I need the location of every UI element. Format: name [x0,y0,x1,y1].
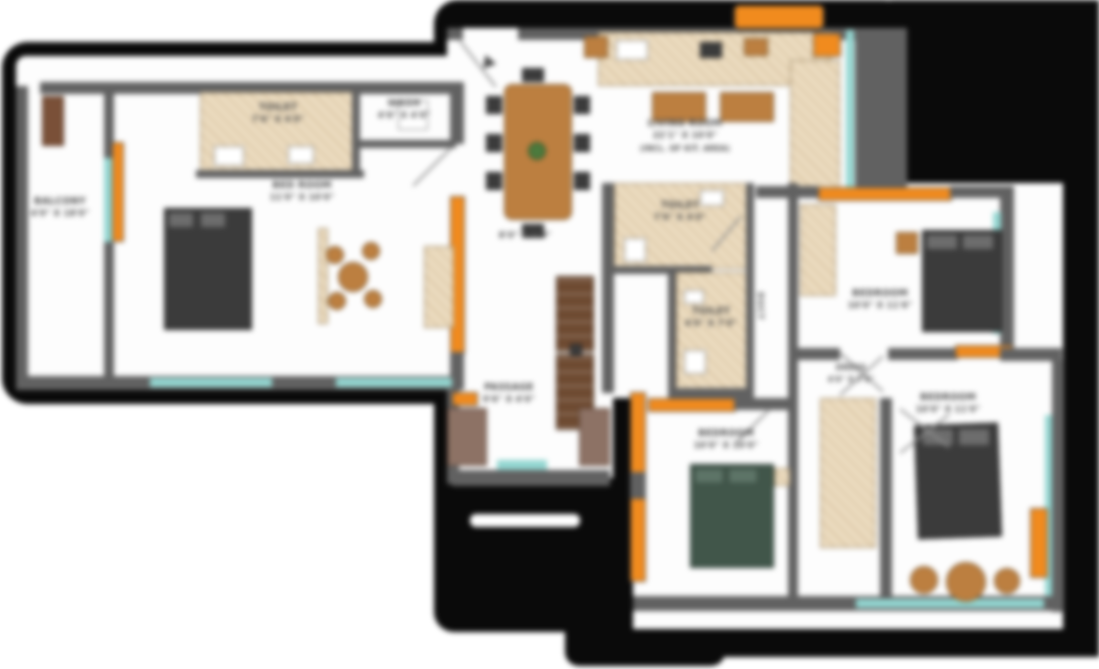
wall [668,388,754,398]
stool [994,568,1020,594]
wall [950,186,1006,198]
room-label-toilet3: TOILET 4'0" X 7'0" [676,306,746,331]
window-sill [630,498,646,582]
hob [700,42,722,58]
balcony-projection [733,4,825,30]
room-name: DUCT [756,292,765,320]
chair [574,96,590,114]
wardrobe-knob [570,344,582,356]
wall [668,272,676,396]
chair [362,242,380,260]
room-dim: 7'0" X 4'0" [654,213,706,223]
wall [880,398,892,598]
window-strip [856,599,1044,608]
window-strip [336,378,452,387]
room-label-bedroom4: BEDROOM 10'0" X 11'0" [888,392,1008,417]
wall [196,170,364,178]
counter-item [813,33,841,57]
window-sill [112,142,124,242]
chair [574,172,590,190]
washbasin [684,290,704,304]
wall [104,242,114,382]
room-dim: 4'0" X 7'0" [685,319,737,329]
room-label-dress: DRESS 4'0" X 7'6" [824,362,878,387]
wall [450,92,464,144]
floor-plan: BALCONY 4'0" X 18'0" TOILET 7'6" X 4'0" … [0,0,1099,669]
pillow [958,428,990,446]
room-name: WASH [388,98,421,109]
room-dim: 4'6" X 4'0" [378,111,430,121]
room-name: TOILET [259,102,297,113]
room-name: BED ROOM [272,180,331,191]
stool [946,562,986,602]
wall [1000,186,1014,354]
wall [798,348,840,360]
window-sill [818,187,952,201]
room-label-duct: DUCT [756,292,765,320]
counter-item [744,38,768,56]
room-label-living: LIVING ROOM 22'1" X 10'0" (INCL. OF KIT.… [600,118,770,155]
room-dim: 11'0" X 10'0" [270,193,335,203]
wall [746,272,754,396]
window-sill [630,392,646,474]
table-plant [528,142,546,160]
kitchen-platform [790,60,840,195]
room-name: BEDROOM [920,392,976,403]
chair [522,68,544,82]
room-label-toilet2: TOILET 7'0" X 4'0" [628,200,732,225]
round-table [338,262,368,292]
room-label-bedroom2: BEDROOM 10'0" X 11'6" [822,288,938,313]
window-sill [452,392,478,406]
room-label-passage: PASSAGE 9'6" X 4'0" [466,382,552,407]
chair [574,134,590,152]
chair [486,134,502,152]
lobby-pillar [579,408,610,466]
washbasin [214,146,244,166]
room-dim: 7'6" X 4'0" [252,115,304,125]
room-dim: 10'0" X 10'0" [694,441,759,451]
wall [602,183,614,393]
room-dim: 4'0" X 18'0" [31,209,90,219]
room-name: BEDROOM [698,428,754,439]
wall [855,28,907,196]
wall [756,186,818,198]
chair [486,96,502,114]
room-name: TOILET [692,306,730,317]
toilet-wc [288,146,314,164]
chair [326,246,344,264]
window-strip [497,460,547,470]
room-dim: 10'0" X 11'6" [848,301,913,311]
room-label-foyer: 8'0" X 4'0" [480,230,570,242]
duct-box [42,96,64,146]
toilet-wc [684,350,706,374]
entry-step [470,514,580,527]
plan-outline-top-right [890,0,1099,190]
wall [746,183,754,275]
chair [328,292,346,310]
wall [16,86,28,388]
pillow [168,212,194,228]
room-dim: 8'0" X 4'0" [499,231,551,241]
room-dim: 9'6" X 4'0" [483,395,535,405]
chair [364,290,382,308]
room-label-bedroom3: BEDROOM 10'0" X 10'0" [668,428,784,453]
toilet-wc [624,238,646,262]
pillow [962,234,994,250]
window-strip [150,378,272,387]
pillow [200,212,226,228]
wall [888,348,958,360]
wall [447,28,463,40]
window-sill [1030,508,1048,578]
room-label-toilet1: TOILET 7'6" X 4'0" [222,102,334,127]
wall [450,352,464,378]
wardrobe [556,276,594,352]
bedside-table [774,468,790,486]
wall [630,472,646,500]
room-name: BEDROOM [852,288,908,299]
room-label-wash: WASH 4'6" X 4'0" [358,98,450,123]
room-label-balcony: BALCONY 4'0" X 18'0" [12,196,108,221]
bedside-table [896,232,918,254]
room-name: TOILET [661,200,699,211]
room-name: LIVING ROOM [648,118,723,129]
wall [1052,360,1064,612]
pillow [728,468,758,484]
floor-plan-canvas: BALCONY 4'0" X 18'0" TOILET 7'6" X 4'0" … [0,0,1099,669]
wall [452,470,610,486]
room-name: PASSAGE [484,382,534,393]
wall [788,183,798,355]
stool [910,566,938,594]
window-sill [648,398,736,412]
window-strip [846,30,854,195]
room-name: BALCONY [34,196,86,207]
wall [360,140,456,148]
cabinet [424,246,454,328]
pillow [694,468,724,484]
kitchen-sink [616,40,648,60]
room-note: (INCL. OF KIT. AREA) [640,144,730,153]
room-name: DRESS [836,363,866,372]
room-dim: 10'0" X 11'0" [916,405,981,415]
chair [486,172,502,190]
lobby-pillar [447,408,487,466]
wall [734,398,790,410]
wardrobe [800,204,836,296]
pillow [926,234,958,250]
room-dim: 22'1" X 10'0" [653,131,718,141]
stool [584,36,608,58]
tv-unit [318,228,328,324]
room-label-bedroom1: BED ROOM 11'0" X 10'0" [242,180,362,205]
room-dim: 4'0" X 7'6" [828,375,875,384]
dress-closet [820,398,876,548]
